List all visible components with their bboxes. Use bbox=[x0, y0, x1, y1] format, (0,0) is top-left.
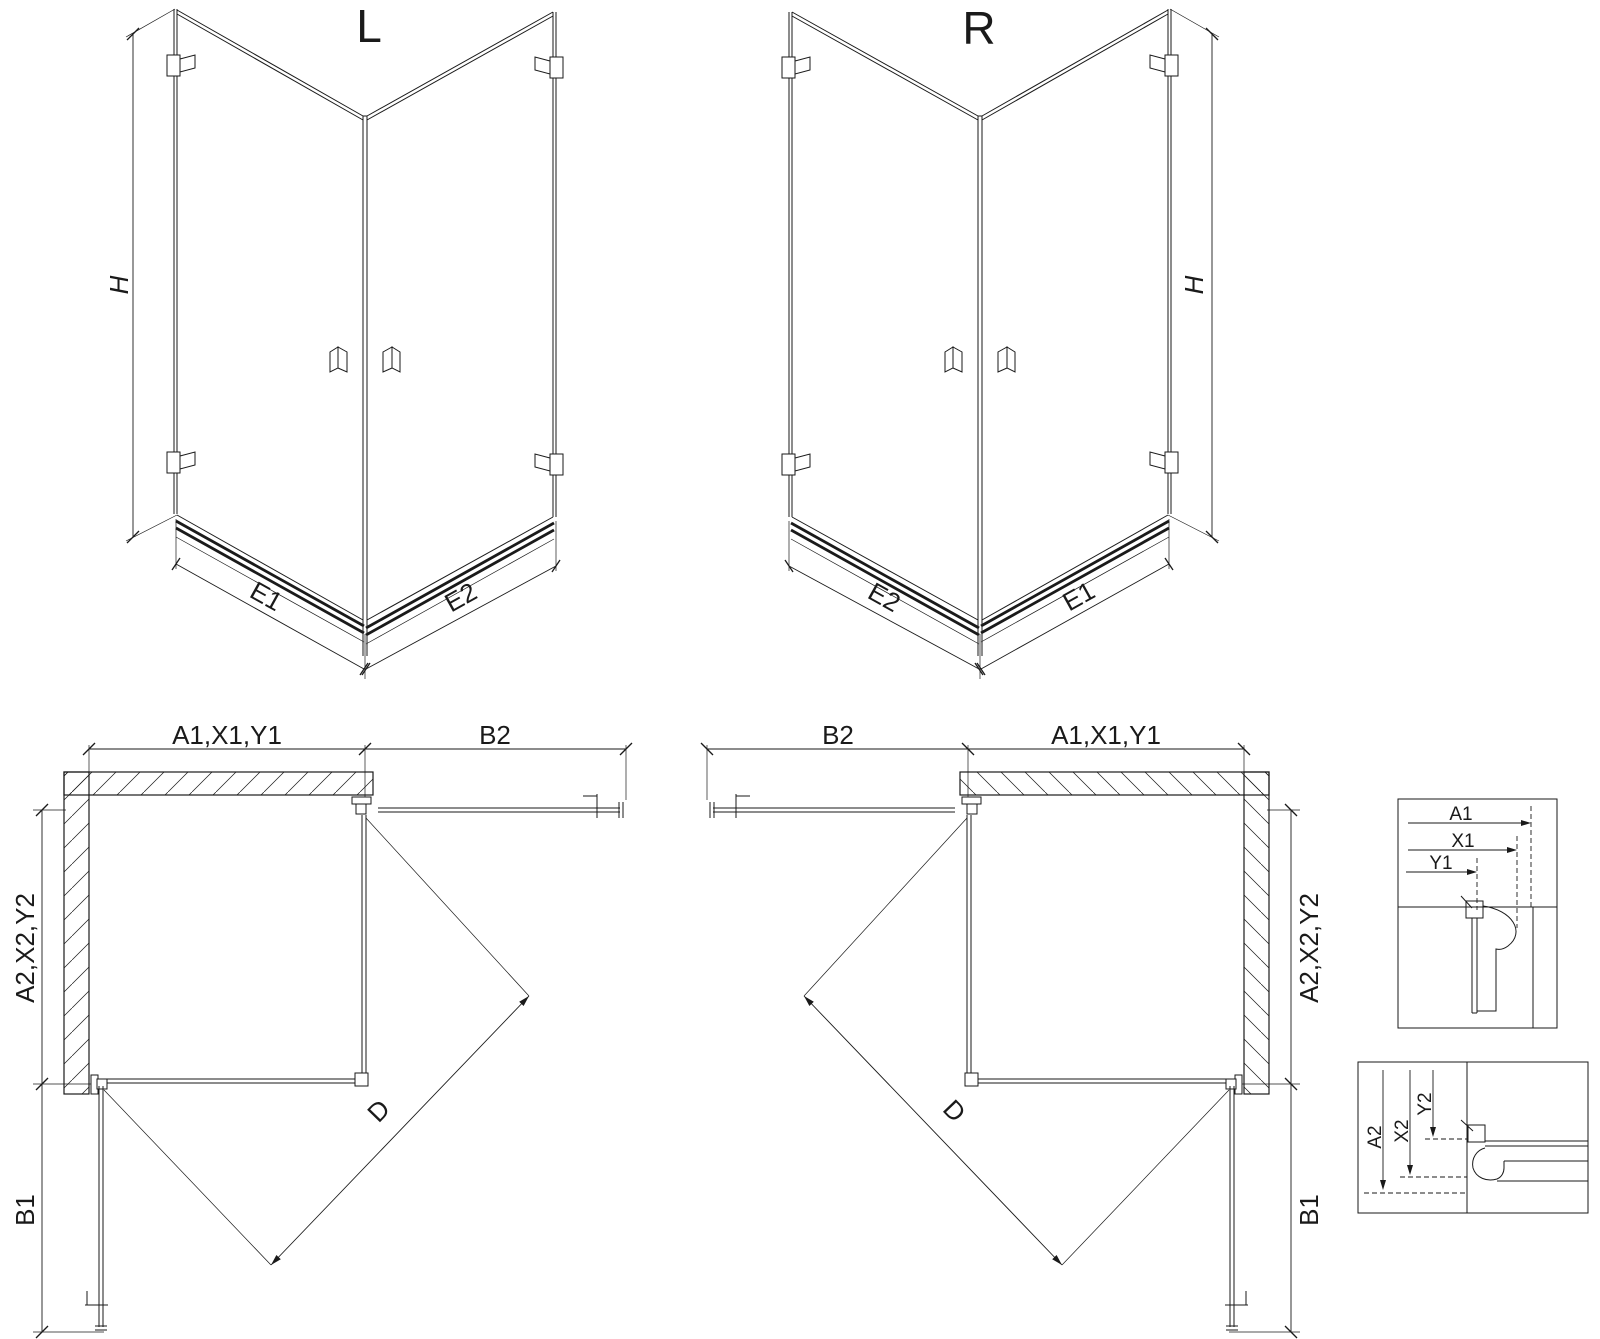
detail-inset-bottom: A2 X2 Y2 bbox=[1358, 1062, 1588, 1213]
detail-bottom-x2-label: X2 bbox=[1392, 1119, 1413, 1142]
plan-left-door-side-label: B1 bbox=[10, 1194, 40, 1226]
iso-view-right: R H E2 E1 bbox=[782, 2, 1219, 679]
plan-left-diagonal-label: D bbox=[361, 1094, 396, 1128]
detail-inset-top: A1 X1 Y1 bbox=[1398, 799, 1557, 1028]
iso-left-height-label: H bbox=[104, 275, 134, 294]
plan-left-depth-label: A2,X2,Y2 bbox=[10, 893, 40, 1003]
detail-top-x1-label: X1 bbox=[1451, 831, 1474, 852]
plan-view-left: A1,X1,Y1 B2 A2,X2,Y2 B1 D bbox=[10, 720, 632, 1338]
iso-left-e1-label: E1 bbox=[245, 575, 287, 617]
plan-right-door-side-label: B1 bbox=[1294, 1194, 1324, 1226]
iso-right-height-label: H bbox=[1179, 275, 1209, 294]
plan-right-depth-label: A2,X2,Y2 bbox=[1294, 893, 1324, 1003]
plan-view-right: B2 A1,X1,Y1 A2,X2,Y2 B1 D bbox=[701, 720, 1324, 1338]
iso-right-variant-label: R bbox=[962, 2, 995, 54]
iso-view-left: L H E1 E2 bbox=[104, 0, 563, 679]
detail-bottom-a2-label: A2 bbox=[1365, 1125, 1386, 1148]
plan-left-width-label: A1,X1,Y1 bbox=[172, 720, 282, 750]
iso-left-variant-label: L bbox=[356, 0, 382, 52]
detail-top-y1-label: Y1 bbox=[1429, 853, 1452, 874]
profile-section bbox=[1461, 1120, 1588, 1181]
plan-right-diagonal-label: D bbox=[937, 1094, 972, 1128]
shower-enclosure-technical-drawing: L H E1 E2 R H E2 E1 A1,X1,Y1 B2 A2,X2,Y2… bbox=[0, 0, 1600, 1339]
plan-left-door-top-label: B2 bbox=[479, 720, 511, 750]
iso-right-e1-label: E1 bbox=[1057, 575, 1099, 617]
drawing-canvas: L H E1 E2 R H E2 E1 A1,X1,Y1 B2 A2,X2,Y2… bbox=[0, 0, 1600, 1339]
plan-right-width-label: A1,X1,Y1 bbox=[1051, 720, 1161, 750]
detail-top-a1-label: A1 bbox=[1449, 804, 1472, 825]
profile-section bbox=[1461, 896, 1516, 1013]
detail-bottom-y2-label: Y2 bbox=[1415, 1092, 1436, 1115]
plan-right-door-top-label: B2 bbox=[822, 720, 854, 750]
